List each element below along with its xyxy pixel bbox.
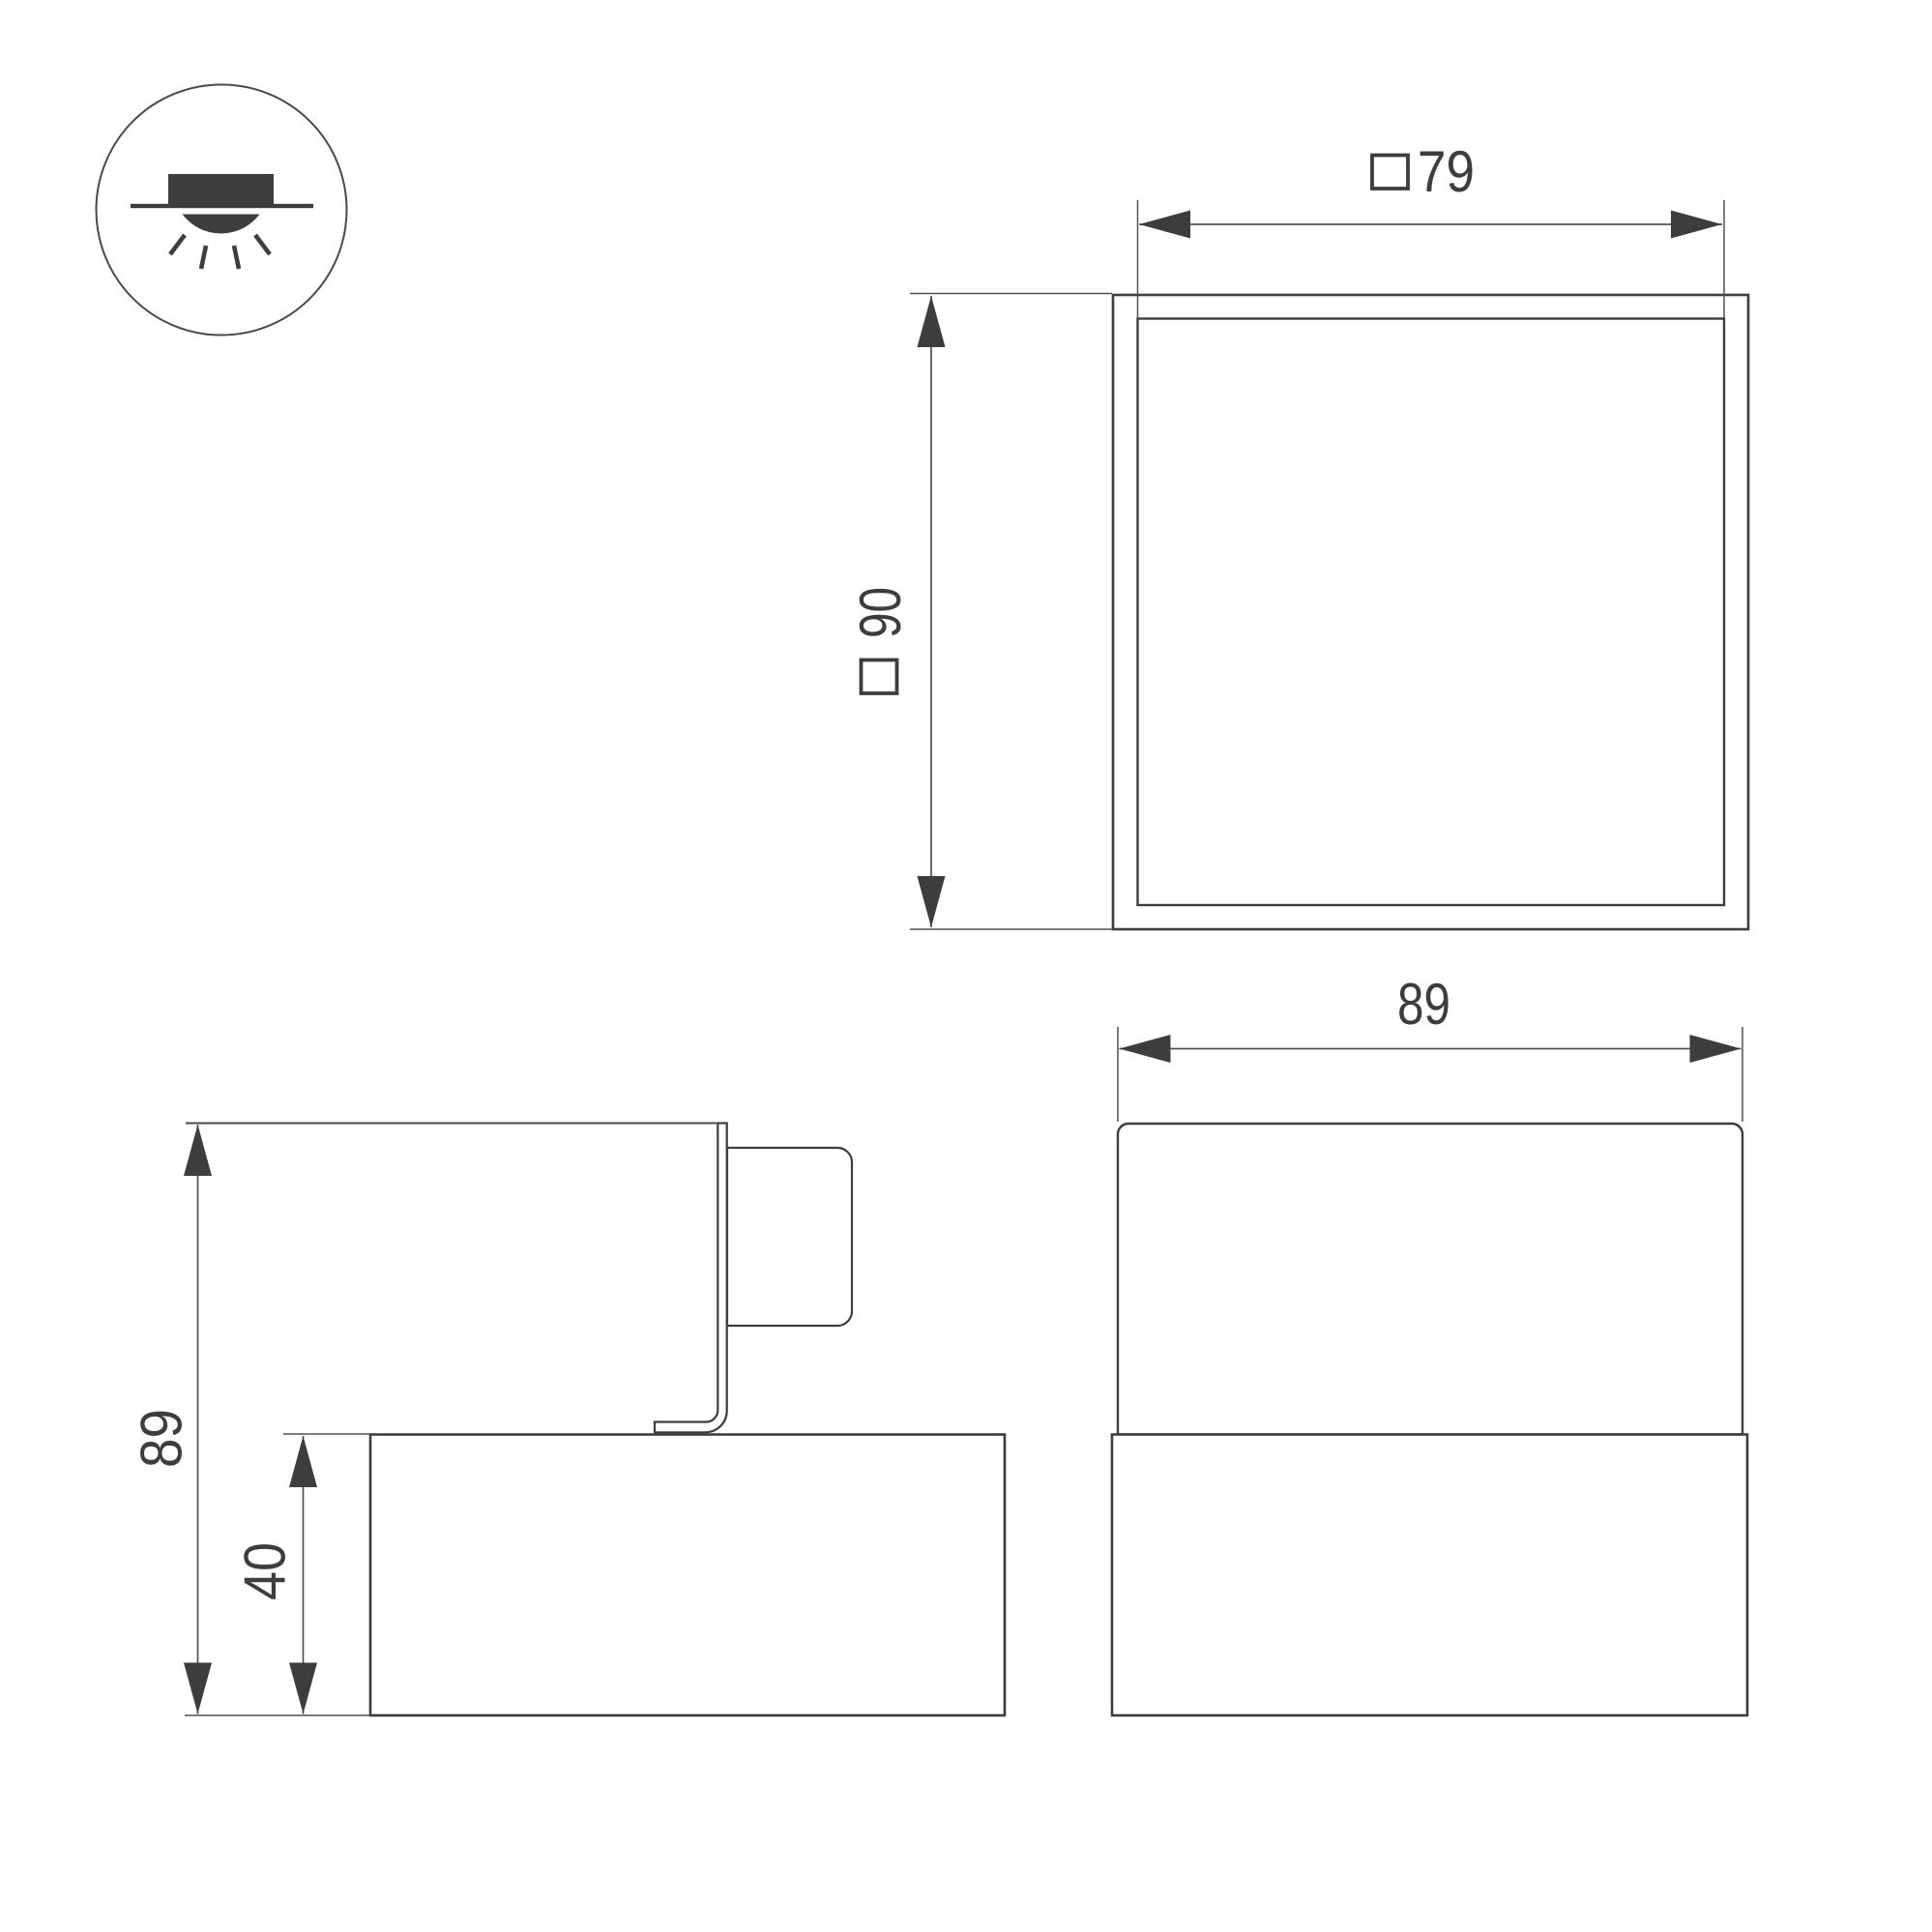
- svg-text:89: 89: [130, 1409, 194, 1468]
- svg-text:79: 79: [1418, 139, 1475, 204]
- svg-text:40: 40: [233, 1542, 298, 1600]
- svg-text:90: 90: [848, 587, 913, 638]
- svg-text:89: 89: [1397, 972, 1450, 1037]
